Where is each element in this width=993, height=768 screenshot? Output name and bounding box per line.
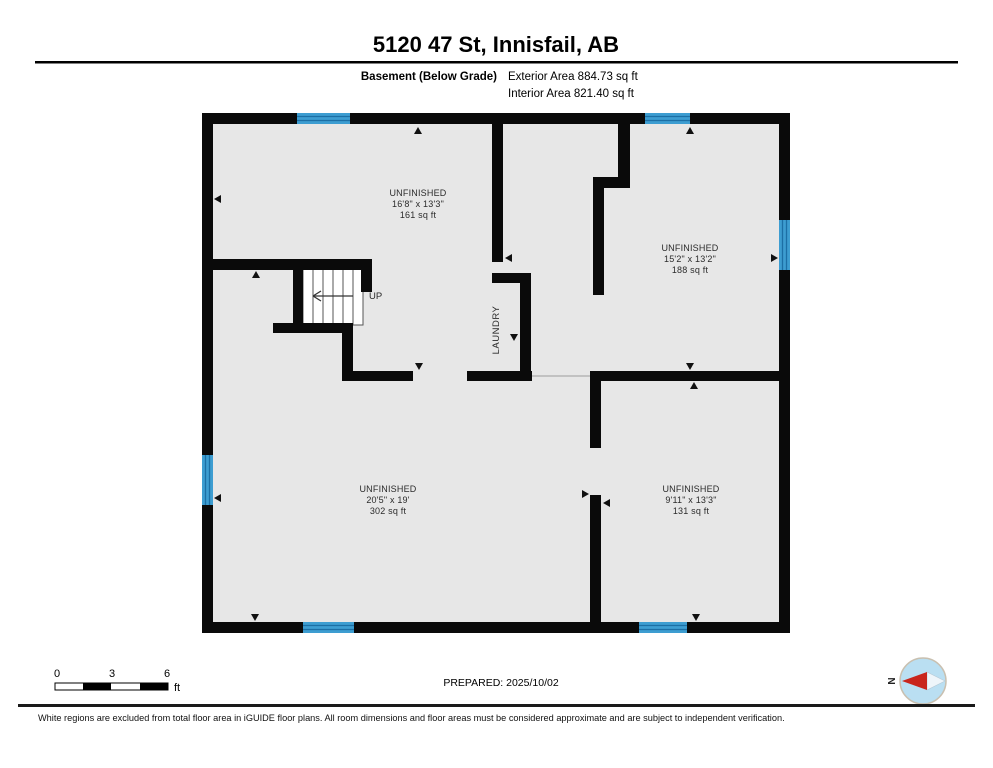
compass-icon: N <box>887 658 946 704</box>
window-bottom-right <box>639 622 687 633</box>
room-area: 188 sq ft <box>672 265 709 275</box>
room-area: 302 sq ft <box>370 506 407 516</box>
wall-hall-bottom-left <box>342 371 413 381</box>
compass-north-label: N <box>887 677 898 684</box>
prepared-date-label: PREPARED: 2025/10/02 <box>443 677 559 689</box>
header-rule <box>35 61 958 64</box>
footer-disclaimer: White regions are excluded from total fl… <box>38 713 785 723</box>
scale-unit-label: ft <box>174 682 180 694</box>
room-area: 161 sq ft <box>400 210 437 220</box>
page-title: 5120 47 St, Innisfail, AB <box>373 32 619 57</box>
room-name: UNFINISHED <box>661 243 718 253</box>
interior-area-label: Interior Area 821.40 sq ft <box>508 88 635 100</box>
window-right <box>779 220 790 270</box>
exterior-area-label: Exterior Area 884.73 sq ft <box>508 71 639 83</box>
footer-rule <box>18 704 975 707</box>
wall-exterior-bottom <box>202 622 790 633</box>
window-left <box>202 455 213 505</box>
wall-exterior-left <box>202 113 213 633</box>
wall-laundry-right <box>520 273 531 381</box>
room-dimensions: 15'2" x 13'2" <box>664 254 716 264</box>
window-bottom-left <box>303 622 354 633</box>
scale-tick-3: 3 <box>109 668 115 680</box>
room-area: 131 sq ft <box>673 506 710 516</box>
scale-tick-6: 6 <box>164 668 170 680</box>
wall-room2-lower <box>593 177 604 295</box>
floor-label: Basement (Below Grade) <box>361 71 497 83</box>
scale-bar: 0 3 6 ft <box>54 668 180 694</box>
wall-stair-top <box>202 259 372 270</box>
wall-stair-bottom <box>273 323 353 333</box>
stairs-up-label: UP <box>369 291 382 302</box>
room-name: UNFINISHED <box>662 484 719 494</box>
room-dimensions: 20'5" x 19' <box>366 495 409 505</box>
room-dimensions: 9'11" x 13'3" <box>665 495 716 505</box>
window-top-right <box>645 113 690 124</box>
wall-exterior-top <box>202 113 790 124</box>
room-name: UNFINISHED <box>389 188 446 198</box>
laundry-label: LAUNDRY <box>491 305 502 354</box>
floorplan-page: 5120 47 St, Innisfail, AB Basement (Belo… <box>0 0 993 768</box>
wall-hall-bottom-right <box>467 371 532 381</box>
staircase <box>303 268 363 325</box>
wall-room4-top <box>590 371 790 381</box>
wall-room2-upper <box>618 124 630 182</box>
room-name: UNFINISHED <box>359 484 416 494</box>
scale-bar-segment <box>140 683 168 690</box>
room-dimensions: 16'8" x 13'3" <box>392 199 444 209</box>
scale-bar-segment <box>83 683 111 690</box>
floor-plan-canvas: 5120 47 St, Innisfail, AB Basement (Belo… <box>0 0 993 768</box>
window-top-left <box>297 113 350 124</box>
scale-tick-0: 0 <box>54 668 60 680</box>
wall-room4-left-upper <box>590 371 601 448</box>
wall-hall-left <box>492 124 503 262</box>
wall-stair-cap <box>361 259 372 292</box>
wall-room4-left-lower <box>590 495 601 633</box>
